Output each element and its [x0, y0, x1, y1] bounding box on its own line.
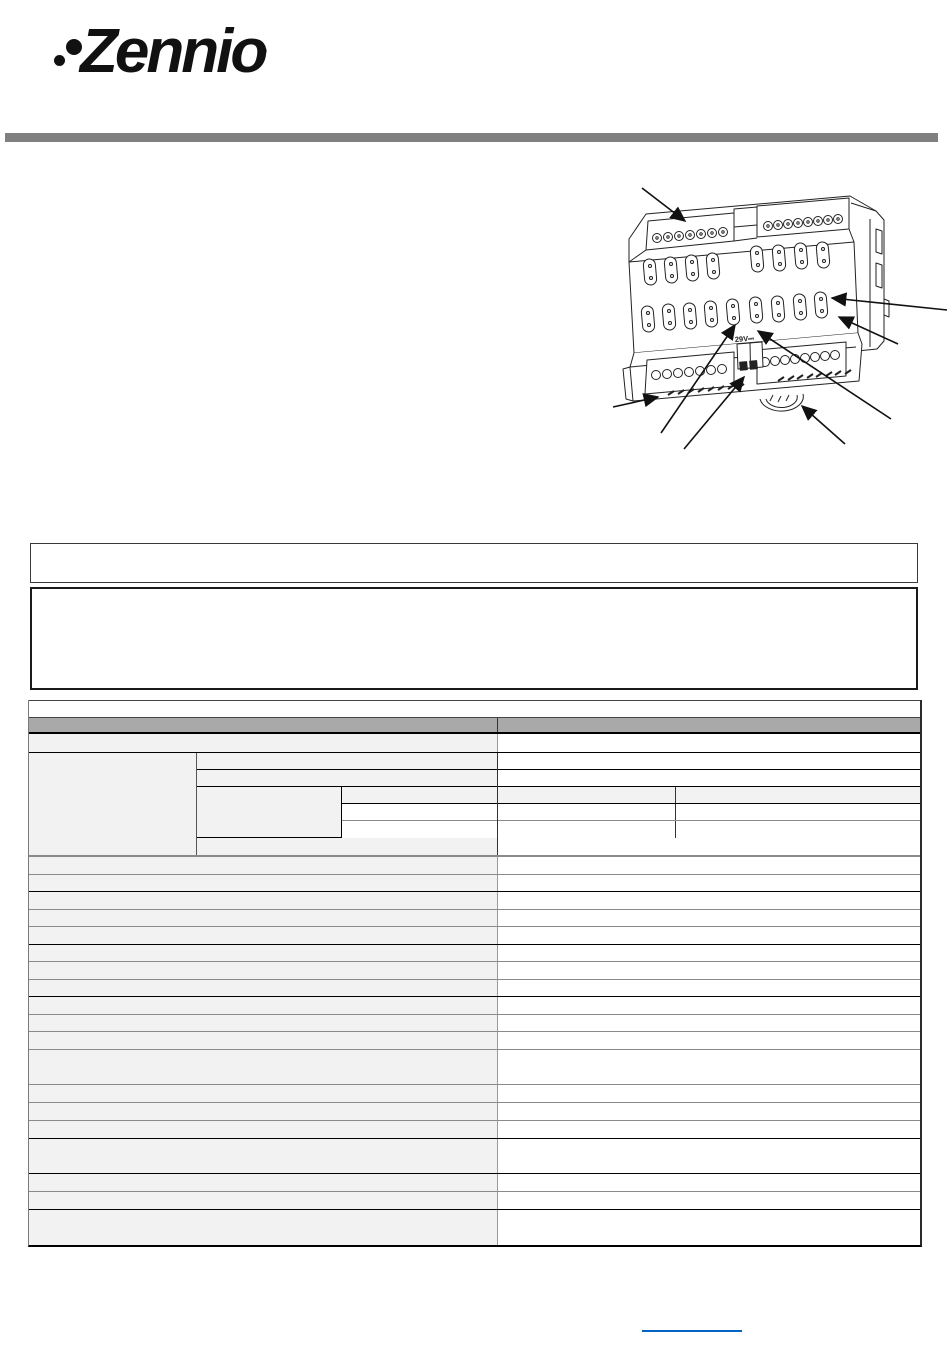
table-row: [29, 1103, 920, 1121]
table-row: [197, 787, 497, 838]
table-row: [197, 753, 497, 770]
table-row: [29, 857, 920, 875]
table-cell: [29, 997, 498, 1014]
table-cell: [197, 838, 497, 855]
table-cell: [29, 962, 498, 979]
table-row: [342, 787, 497, 804]
table-row: [498, 838, 920, 855]
table-cell: [29, 1032, 498, 1049]
table-cell: [197, 753, 497, 769]
spec-table: [28, 700, 922, 1247]
table-cell: [29, 1210, 498, 1245]
table-row: [29, 1139, 920, 1174]
table-cell: [498, 1192, 920, 1209]
table-cell: [676, 821, 920, 838]
table-row: [498, 787, 920, 804]
table-cell: [29, 857, 498, 874]
table-cell: [342, 821, 497, 838]
nested-mid-column: [197, 753, 498, 855]
table-cell: [29, 734, 498, 752]
table-row: [29, 980, 920, 997]
table-cell: [29, 1139, 498, 1173]
table-row: [29, 734, 920, 753]
datasheet-page: Zennio ®: [0, 0, 950, 1353]
table-cell: [29, 892, 498, 909]
table-cell: [498, 1015, 920, 1031]
table-cell: [498, 1174, 920, 1191]
footer-link-underline[interactable]: [642, 1330, 742, 1332]
table-cell: [498, 718, 920, 732]
table-cell: [498, 821, 676, 838]
table-cell: [498, 770, 920, 786]
table-row: [498, 753, 920, 770]
voltage-label: 29V⎓: [735, 334, 756, 344]
table-cell: [676, 787, 920, 803]
table-row: [197, 770, 497, 787]
table-cell: [498, 927, 920, 944]
header-divider-bar: [5, 133, 938, 142]
table-title-row: [29, 700, 920, 718]
table-cell: [498, 875, 920, 891]
table-cell: [29, 1085, 498, 1102]
table-cell: [29, 1174, 498, 1191]
table-cell: [676, 804, 920, 820]
table-cell: [29, 875, 498, 891]
table-cell: [498, 1139, 920, 1173]
table-row: [29, 1050, 920, 1085]
table-cell: [342, 804, 497, 820]
table-cell: [29, 945, 498, 961]
nested-right-column: [498, 753, 920, 855]
product-title-box: [30, 543, 918, 583]
table-cell: [498, 804, 676, 820]
product-description-box: [30, 587, 918, 690]
table-cell: [498, 892, 920, 909]
table-cell: [197, 770, 497, 786]
table-cell: [498, 1210, 920, 1245]
callout-arrow-top-terminals: [642, 188, 685, 221]
table-cell: [498, 1032, 920, 1049]
table-cell: [498, 838, 920, 855]
table-cell: [498, 787, 676, 803]
logo-small-dot-icon: [54, 55, 65, 66]
table-cell: [29, 1015, 498, 1031]
zennio-logo: Zennio ®: [50, 22, 310, 102]
table-cell: [498, 997, 920, 1014]
table-cell: [342, 787, 497, 803]
table-cell: [498, 910, 920, 926]
knx-power-connector: [737, 342, 763, 370]
table-cell: [29, 927, 498, 944]
table-cell: [498, 753, 920, 769]
table-cell: [498, 734, 920, 752]
table-row: [29, 1192, 920, 1210]
table-row: [29, 910, 920, 927]
table-cell: [498, 1085, 920, 1102]
table-cell: [498, 1050, 920, 1084]
table-cell: [498, 945, 920, 961]
table-cell: [498, 857, 920, 874]
table-row: [29, 892, 920, 910]
nested-mid-trio: [342, 787, 497, 837]
table-row: [342, 804, 497, 821]
table-row: [29, 1210, 920, 1245]
table-cell: [498, 1103, 920, 1120]
registered-trademark-symbol: ®: [258, 44, 267, 58]
table-cell: [498, 1121, 920, 1138]
table-row: [29, 927, 920, 945]
table-cell: [498, 980, 920, 996]
device-technical-drawing: 29V⎓: [590, 172, 950, 467]
table-header-row: [29, 718, 920, 734]
table-row: [29, 875, 920, 892]
table-cell: [29, 980, 498, 996]
din-rail-clip: [760, 394, 803, 411]
table-row: [29, 1015, 920, 1032]
table-row: [197, 838, 497, 855]
table-cell: [29, 718, 498, 732]
table-row: [29, 1085, 920, 1103]
table-row: [29, 997, 920, 1015]
table-cell: [29, 1103, 498, 1120]
device-body: [623, 196, 889, 411]
table-cell: [498, 962, 920, 979]
table-row: [29, 945, 920, 962]
callout-arrow-din-clip: [802, 406, 845, 444]
table-row: [498, 804, 920, 821]
table-cell: [29, 910, 498, 926]
table-cell: [29, 1192, 498, 1209]
table-cell: [29, 1050, 498, 1084]
table-row: [498, 821, 920, 838]
table-cell: [29, 753, 197, 855]
logo-wordmark: Zennio: [80, 16, 265, 87]
table-row: [29, 962, 920, 980]
nested-right-trio: [498, 787, 920, 838]
table-nested-section: [29, 753, 920, 857]
table-cell: [29, 1121, 498, 1138]
table-row: [342, 821, 497, 838]
table-row: [29, 1174, 920, 1192]
table-row: [29, 1121, 920, 1139]
table-row: [29, 1032, 920, 1050]
table-row: [498, 770, 920, 787]
table-cell: [197, 787, 342, 837]
